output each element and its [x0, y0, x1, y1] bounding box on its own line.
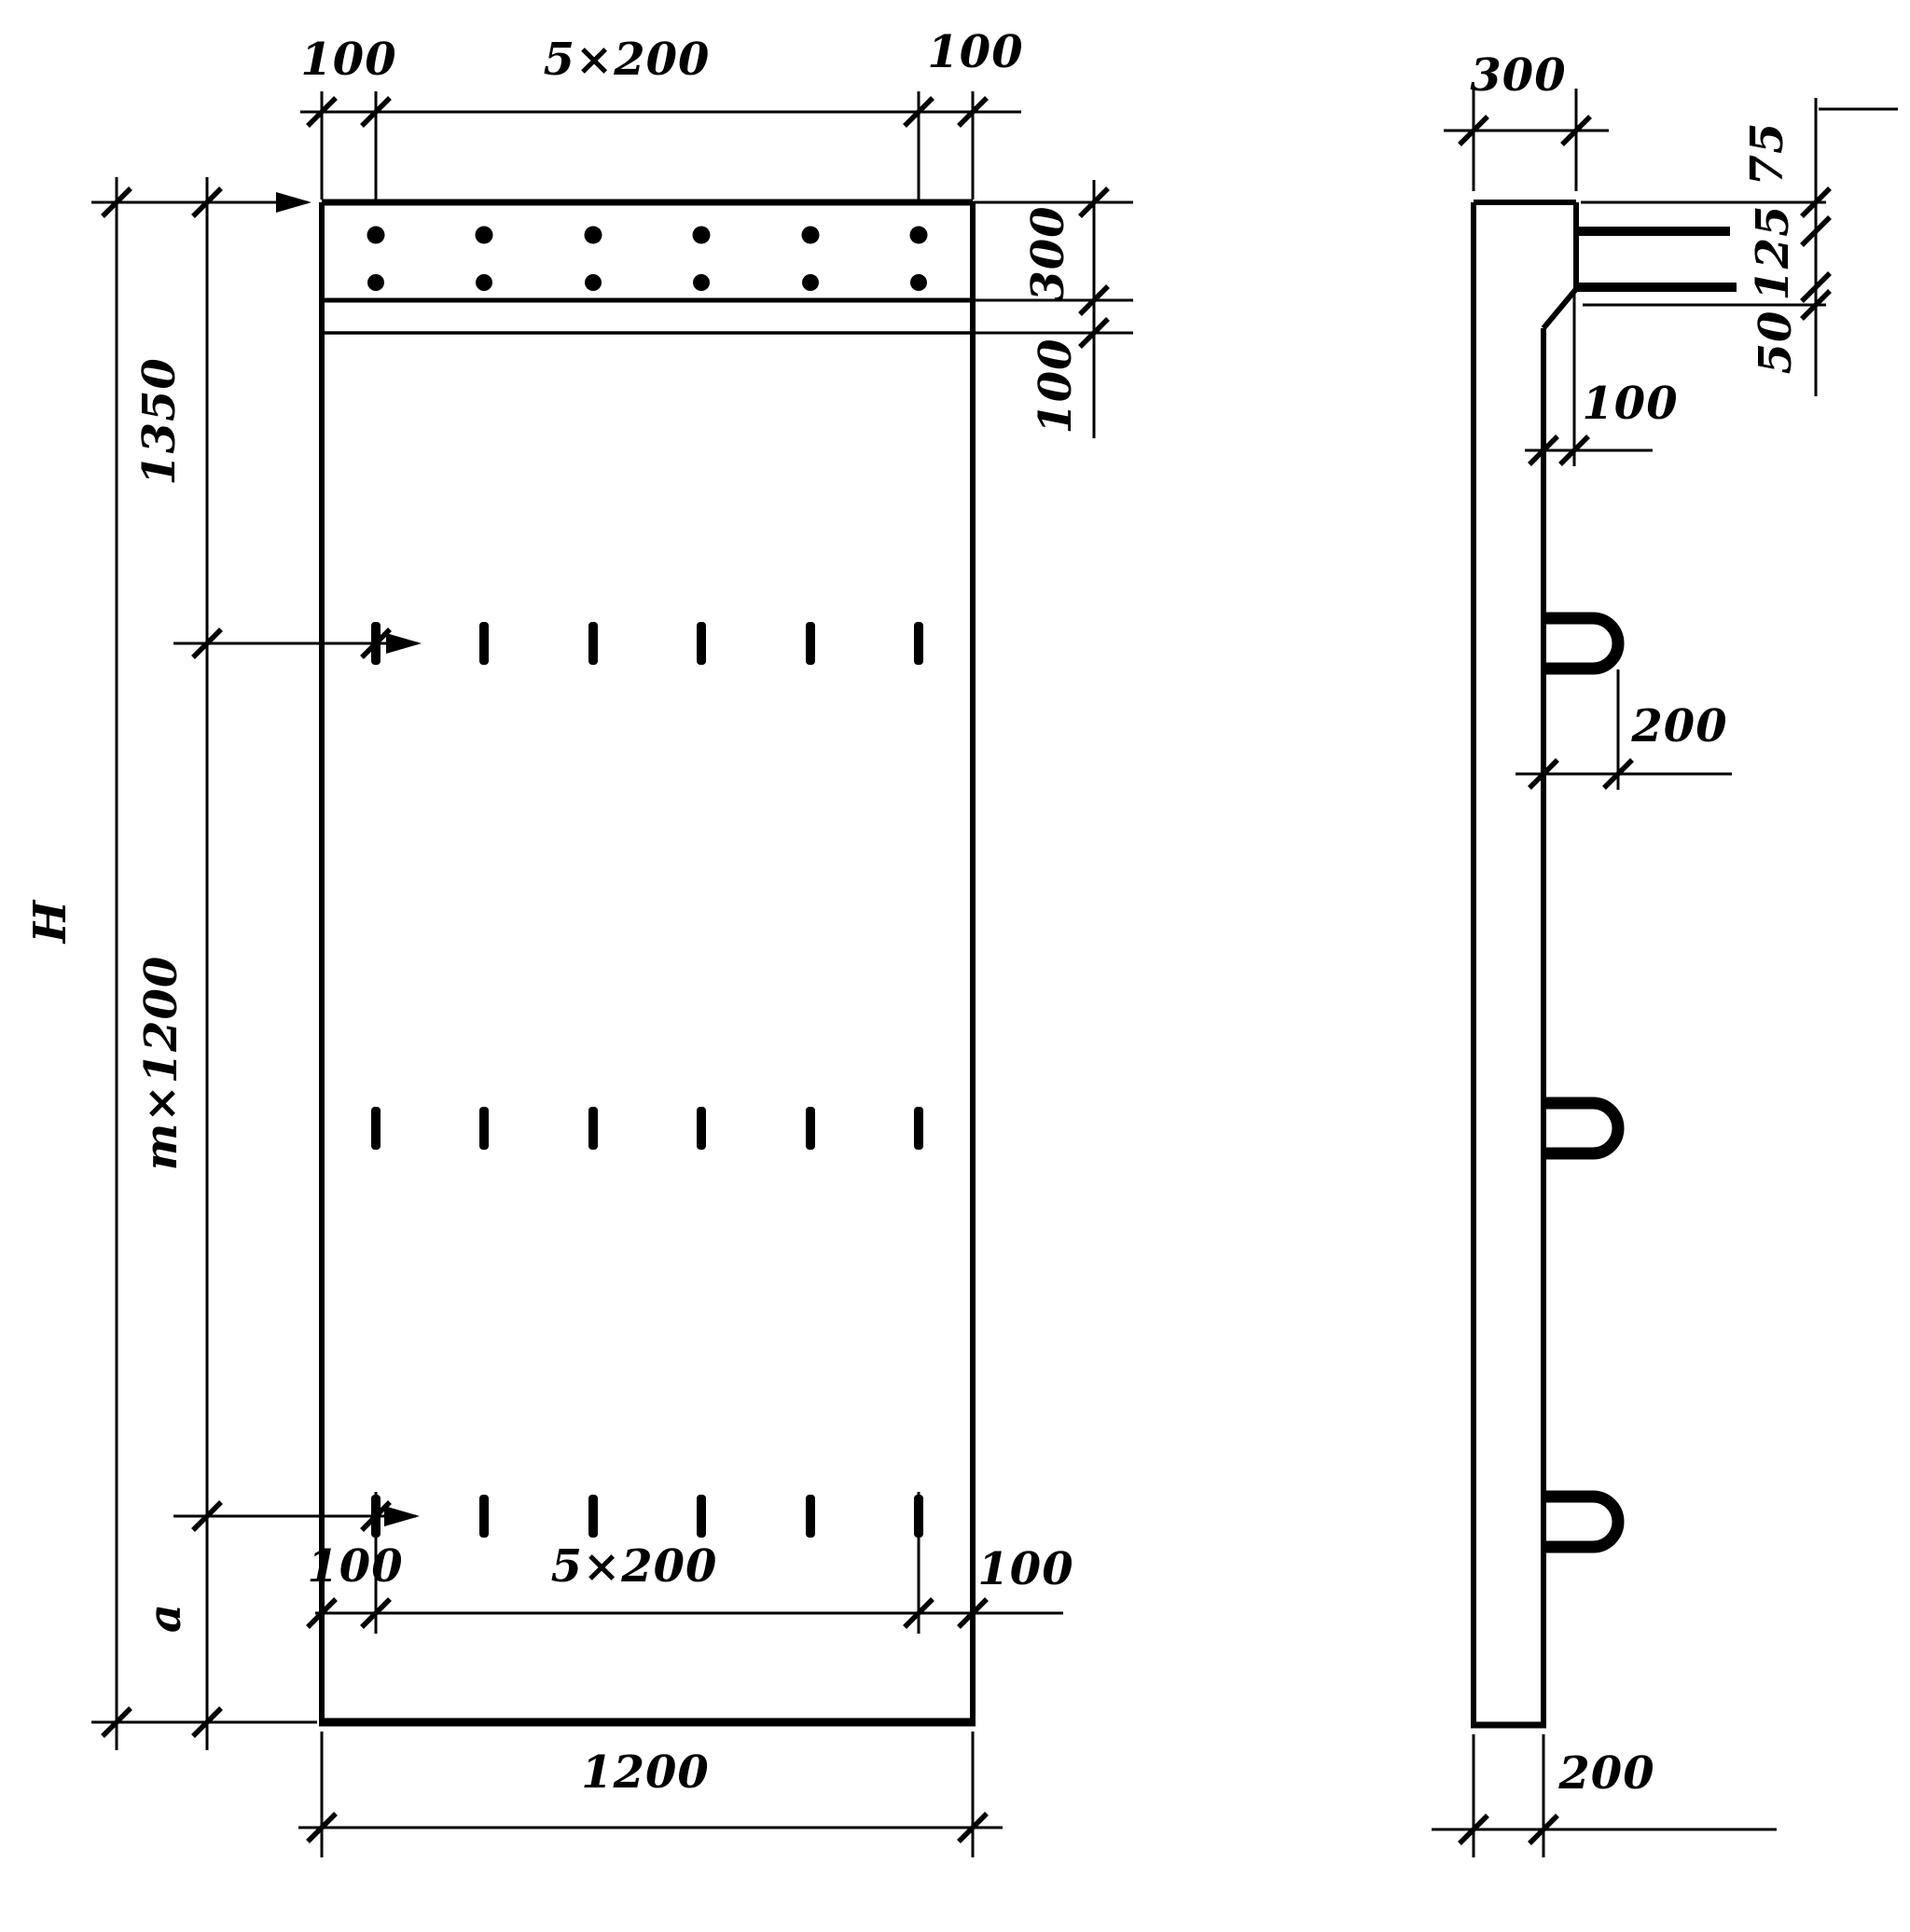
front-bottom-inner-dimension: 100 5×200 100: [307, 1492, 1073, 1634]
dot: [910, 227, 928, 244]
dim-label-top-left-offset: 100: [300, 34, 396, 86]
side-top-dimension: 300: [1444, 49, 1609, 191]
dot: [367, 227, 385, 244]
lifting-loops: [1543, 618, 1618, 1547]
loop: [1543, 618, 1618, 669]
front-width-dimension: 1200: [298, 1732, 1003, 1857]
dim-label-bottom-pitch: 5×200: [551, 1540, 718, 1593]
dim-label-bar-top-offset: 75: [1741, 122, 1793, 186]
bar-dash-rows: [371, 622, 923, 1538]
side-right-dimension: 75 125 50: [1581, 98, 1898, 396]
loop: [1543, 1497, 1618, 1547]
dot: [585, 274, 602, 291]
dim-label-top-segment: 1350: [133, 357, 186, 486]
dim-label-band-height: 300: [1022, 205, 1074, 301]
dash: [588, 1107, 598, 1150]
dash: [806, 1107, 815, 1150]
dim-label-middle-segment: m×1200: [135, 956, 187, 1171]
dash: [588, 622, 598, 665]
dot: [693, 274, 710, 291]
top-bars: [1576, 231, 1737, 287]
front-left-dimension: H 1350 m×1200 a: [24, 177, 422, 1750]
dot: [802, 274, 819, 291]
dot: [476, 227, 493, 244]
panel-outline: [319, 202, 976, 1722]
side-bottom-dimension: 200: [1432, 1734, 1777, 1857]
dim-label-overall-height: H: [24, 899, 76, 945]
dim-label-bottom-right-offset: 100: [977, 1543, 1073, 1595]
dim-label-loop-projection: 200: [1630, 700, 1727, 752]
side-chamfer: [1543, 289, 1576, 328]
dash: [479, 1495, 489, 1538]
dash: [697, 622, 706, 665]
dot: [910, 274, 927, 291]
dim-label-step: 100: [1582, 378, 1678, 430]
side-loop-dimension: 200: [1516, 669, 1732, 790]
dash: [697, 1495, 706, 1538]
anchor-dots: [367, 227, 928, 292]
front-right-dimension: 300 100: [973, 180, 1133, 438]
dot: [802, 227, 820, 244]
dash: [479, 622, 489, 665]
dash: [697, 1107, 706, 1150]
dim-label-bottom-left-offset: 100: [307, 1540, 403, 1593]
dot: [693, 227, 711, 244]
arrowhead: [384, 1506, 420, 1526]
dim-label-top-right-offset: 100: [927, 26, 1023, 78]
arrowhead: [386, 633, 422, 654]
dash: [914, 622, 923, 665]
technical-drawing-page: 100 5×200 100 300 100: [0, 0, 1910, 1932]
dash: [371, 1107, 381, 1150]
dot: [585, 227, 602, 244]
side-view: 300 75 125 50 100: [1432, 49, 1898, 1857]
dash: [806, 1495, 815, 1538]
dim-label-top-pitch: 5×200: [544, 34, 711, 86]
dash: [588, 1495, 598, 1538]
dim-label-bar-spacing: 125: [1747, 204, 1799, 300]
dim-label-band-gap: 100: [1030, 338, 1082, 434]
front-view: 100 5×200 100 300 100: [24, 26, 1133, 1857]
dim-label-side-bottom-width: 200: [1557, 1747, 1654, 1800]
panel-drawing: 100 5×200 100 300 100: [0, 0, 1910, 1932]
dim-label-bottom-segment: a: [139, 1603, 191, 1633]
dash: [479, 1107, 489, 1150]
loop: [1543, 1103, 1618, 1153]
dim-label-side-top-width: 300: [1470, 49, 1566, 102]
arrowhead: [276, 192, 311, 213]
dash: [806, 622, 815, 665]
dim-label-bar-bottom-offset: 50: [1750, 310, 1802, 375]
dim-label-overall-width: 1200: [581, 1746, 710, 1799]
dot: [367, 274, 384, 291]
front-top-dimension: 100 5×200 100: [300, 26, 1024, 200]
dash: [914, 1107, 923, 1150]
dot: [476, 274, 492, 291]
